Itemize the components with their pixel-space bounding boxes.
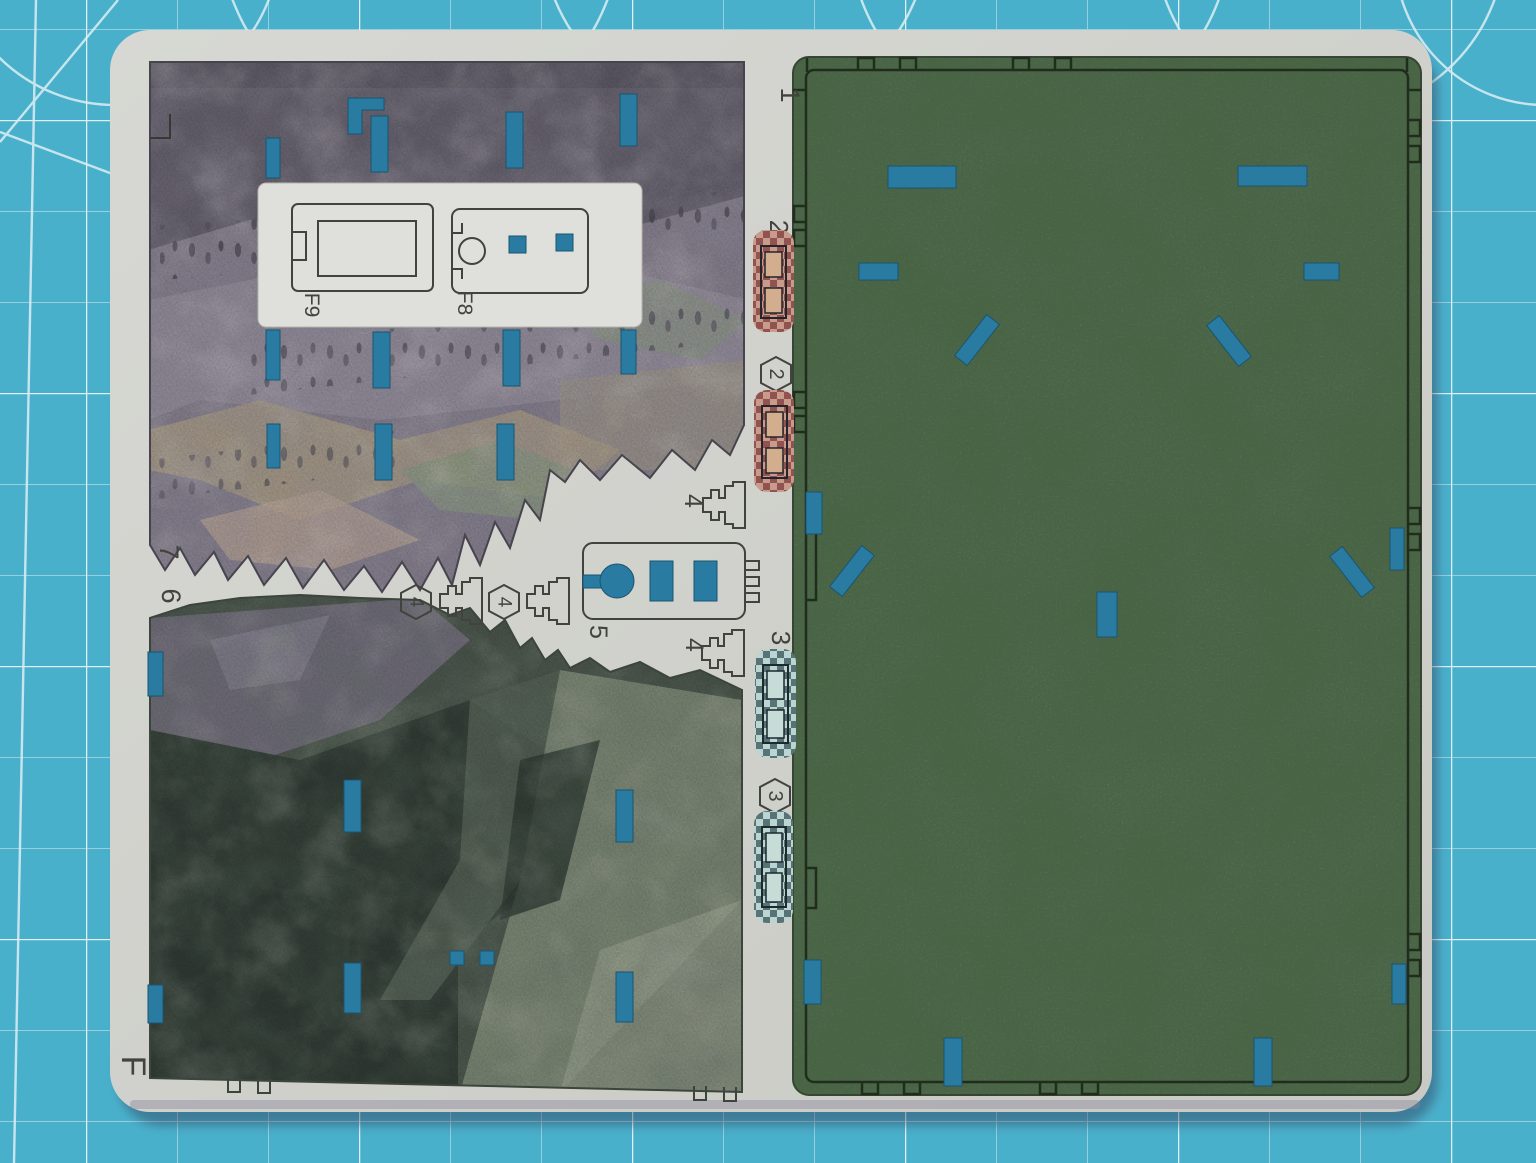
scene: F9 F8 (0, 0, 1536, 1163)
photo-vignette (0, 0, 1536, 1163)
photo-die-cut-terrain-sheet: F9 F8 (0, 0, 1536, 1163)
